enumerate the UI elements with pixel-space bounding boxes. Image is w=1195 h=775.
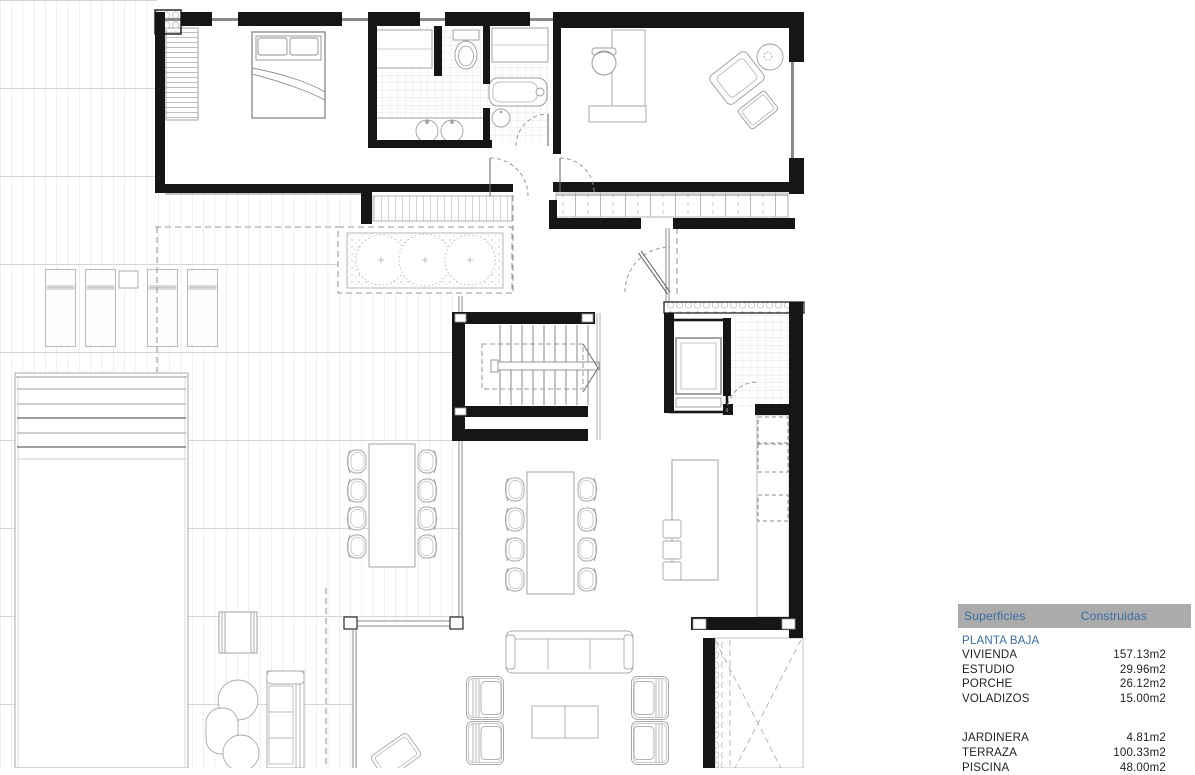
small-sink-icon [492,109,510,127]
coffee-tables [532,706,598,738]
elevator-cab [676,338,721,394]
row-value: 100.33m2 [1113,746,1166,761]
surfaces-table-header: Superficies Construidas [958,604,1191,628]
closet-shelf [492,28,548,62]
table-row: VOLADIZOS 15.00m2 [958,692,1191,707]
side-table [119,271,138,288]
row-label: VOLADIZOS [962,692,1030,707]
column-construidas: Construidas [1081,609,1147,623]
kitchen-counter [757,415,789,617]
row-value: 15.00m2 [1120,692,1166,707]
table-row: VIVIENDA 157.13m2 [958,648,1191,663]
row-label: JARDINERA [962,731,1029,746]
row-label: VIVIENDA [962,648,1017,663]
table-row: ESTUDIO 29.96m2 [958,663,1191,678]
bar-stools [663,520,681,580]
column-superficies: Superficies [964,609,1026,623]
row-value: 157.13m2 [1113,648,1166,663]
row-value: 4.81m2 [1126,731,1166,746]
armchair [467,722,504,765]
glass-wall-pillar [344,617,357,629]
shelf [676,398,721,407]
pouf [223,735,259,768]
outdoor-sofa [267,671,304,768]
door-swing-arc [625,247,670,292]
porch-deck-strips [373,193,788,221]
planter-jardinera [338,227,512,293]
office-chair-icon [592,48,616,75]
table-row: JARDINERA 4.81m2 [958,731,1191,746]
sofa [506,631,633,673]
surfaces-table: Superficies Construidas PLANTA BAJA VIVI… [958,604,1191,775]
sun-lounger [46,270,76,347]
entry-door-leaf [639,251,671,294]
armchair [467,677,504,720]
sun-lounger [86,270,116,347]
utility-tiled-floor [731,315,789,407]
plant-table-icon [757,44,783,70]
armchair [632,722,669,765]
dining-table [527,472,574,594]
section-title-planta-baja: PLANTA BAJA [958,635,1191,648]
table-row: TERRAZA 100.33m2 [958,746,1191,761]
row-value: 29.96m2 [1120,663,1166,678]
row-value: 26.12m2 [1120,677,1166,692]
sun-lounger [148,270,178,347]
armchair [632,677,669,720]
wardrobe [166,28,198,120]
row-label: TERRAZA [962,746,1017,761]
toilet-icon [453,30,479,69]
row-label: PORCHE [962,677,1012,692]
outdoor-chair [219,612,257,653]
row-label: ESTUDIO [962,663,1015,678]
bed [252,32,325,118]
table-row: PORCHE 26.12m2 [958,677,1191,692]
sun-lounger [188,270,218,347]
cross-marked-area [715,638,803,768]
bathtub-icon [489,78,547,106]
pool [15,373,188,768]
glass-wall-pillar [450,617,463,629]
walk-in-closet [374,30,432,68]
dining-table [369,444,415,567]
